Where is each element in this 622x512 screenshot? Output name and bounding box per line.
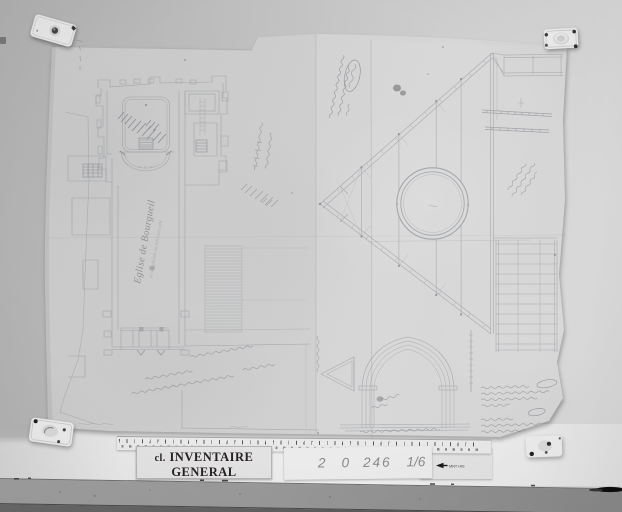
svg-text:MNT HIS: MNT HIS [449,465,465,469]
